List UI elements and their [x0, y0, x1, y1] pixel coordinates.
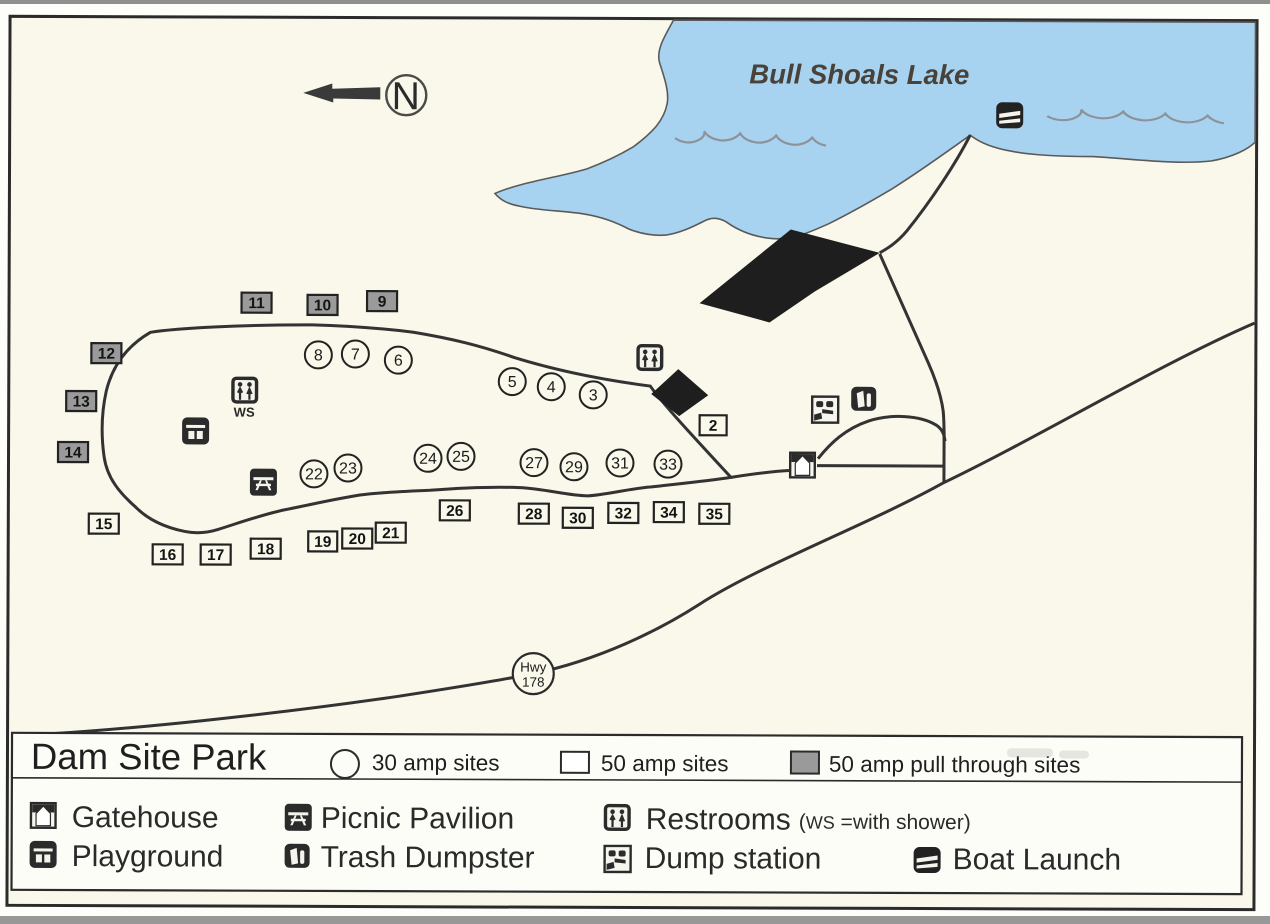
- svg-text:178: 178: [522, 675, 545, 690]
- svg-text:10: 10: [314, 297, 331, 314]
- svg-text:Dam Site Park: Dam Site Park: [31, 736, 267, 778]
- svg-text:24: 24: [419, 451, 437, 468]
- svg-text:5: 5: [508, 374, 517, 391]
- svg-text:21: 21: [382, 525, 400, 542]
- svg-text:Gatehouse: Gatehouse: [72, 801, 219, 835]
- svg-text:2: 2: [709, 418, 718, 435]
- svg-text:30: 30: [569, 510, 586, 527]
- svg-text:9: 9: [378, 294, 387, 311]
- svg-text:20: 20: [349, 531, 366, 548]
- svg-text:50 amp sites: 50 amp sites: [601, 751, 729, 776]
- svg-text:15: 15: [95, 516, 113, 533]
- svg-text:22: 22: [305, 466, 323, 483]
- svg-text:33: 33: [659, 457, 677, 474]
- svg-text:13: 13: [73, 394, 91, 411]
- svg-text:N: N: [392, 75, 420, 118]
- svg-text:34: 34: [660, 505, 678, 522]
- svg-text:23: 23: [339, 460, 357, 477]
- svg-text:Dump station: Dump station: [645, 842, 822, 876]
- svg-text:(WS =with shower): (WS =with shower): [799, 811, 971, 835]
- svg-text:Trash Dumpster: Trash Dumpster: [321, 841, 535, 875]
- svg-text:WS: WS: [234, 405, 255, 420]
- svg-text:35: 35: [706, 506, 724, 523]
- svg-text:27: 27: [525, 455, 543, 472]
- svg-text:11: 11: [248, 295, 265, 312]
- svg-text:12: 12: [98, 346, 115, 363]
- svg-text:Bull Shoals Lake: Bull Shoals Lake: [749, 58, 969, 90]
- svg-text:Hwy: Hwy: [520, 660, 547, 675]
- svg-text:7: 7: [351, 347, 360, 364]
- svg-text:18: 18: [257, 541, 275, 558]
- svg-text:17: 17: [207, 547, 224, 564]
- svg-text:28: 28: [525, 506, 543, 523]
- svg-text:32: 32: [615, 505, 632, 522]
- svg-text:4: 4: [547, 379, 556, 396]
- svg-text:16: 16: [159, 547, 177, 564]
- svg-text:Boat Launch: Boat Launch: [953, 843, 1122, 877]
- svg-text:30 amp sites: 30 amp sites: [372, 750, 500, 775]
- svg-text:6: 6: [394, 353, 403, 370]
- svg-text:26: 26: [446, 503, 464, 520]
- svg-text:19: 19: [314, 534, 332, 551]
- svg-text:25: 25: [452, 449, 470, 466]
- svg-text:29: 29: [565, 459, 583, 476]
- svg-text:3: 3: [589, 387, 598, 404]
- svg-text:14: 14: [64, 445, 82, 462]
- svg-text:Playground: Playground: [72, 840, 224, 874]
- svg-text:Restrooms: Restrooms: [646, 803, 791, 837]
- svg-text:Picnic Pavilion: Picnic Pavilion: [321, 802, 515, 836]
- svg-text:31: 31: [611, 455, 629, 472]
- svg-text:8: 8: [314, 347, 323, 364]
